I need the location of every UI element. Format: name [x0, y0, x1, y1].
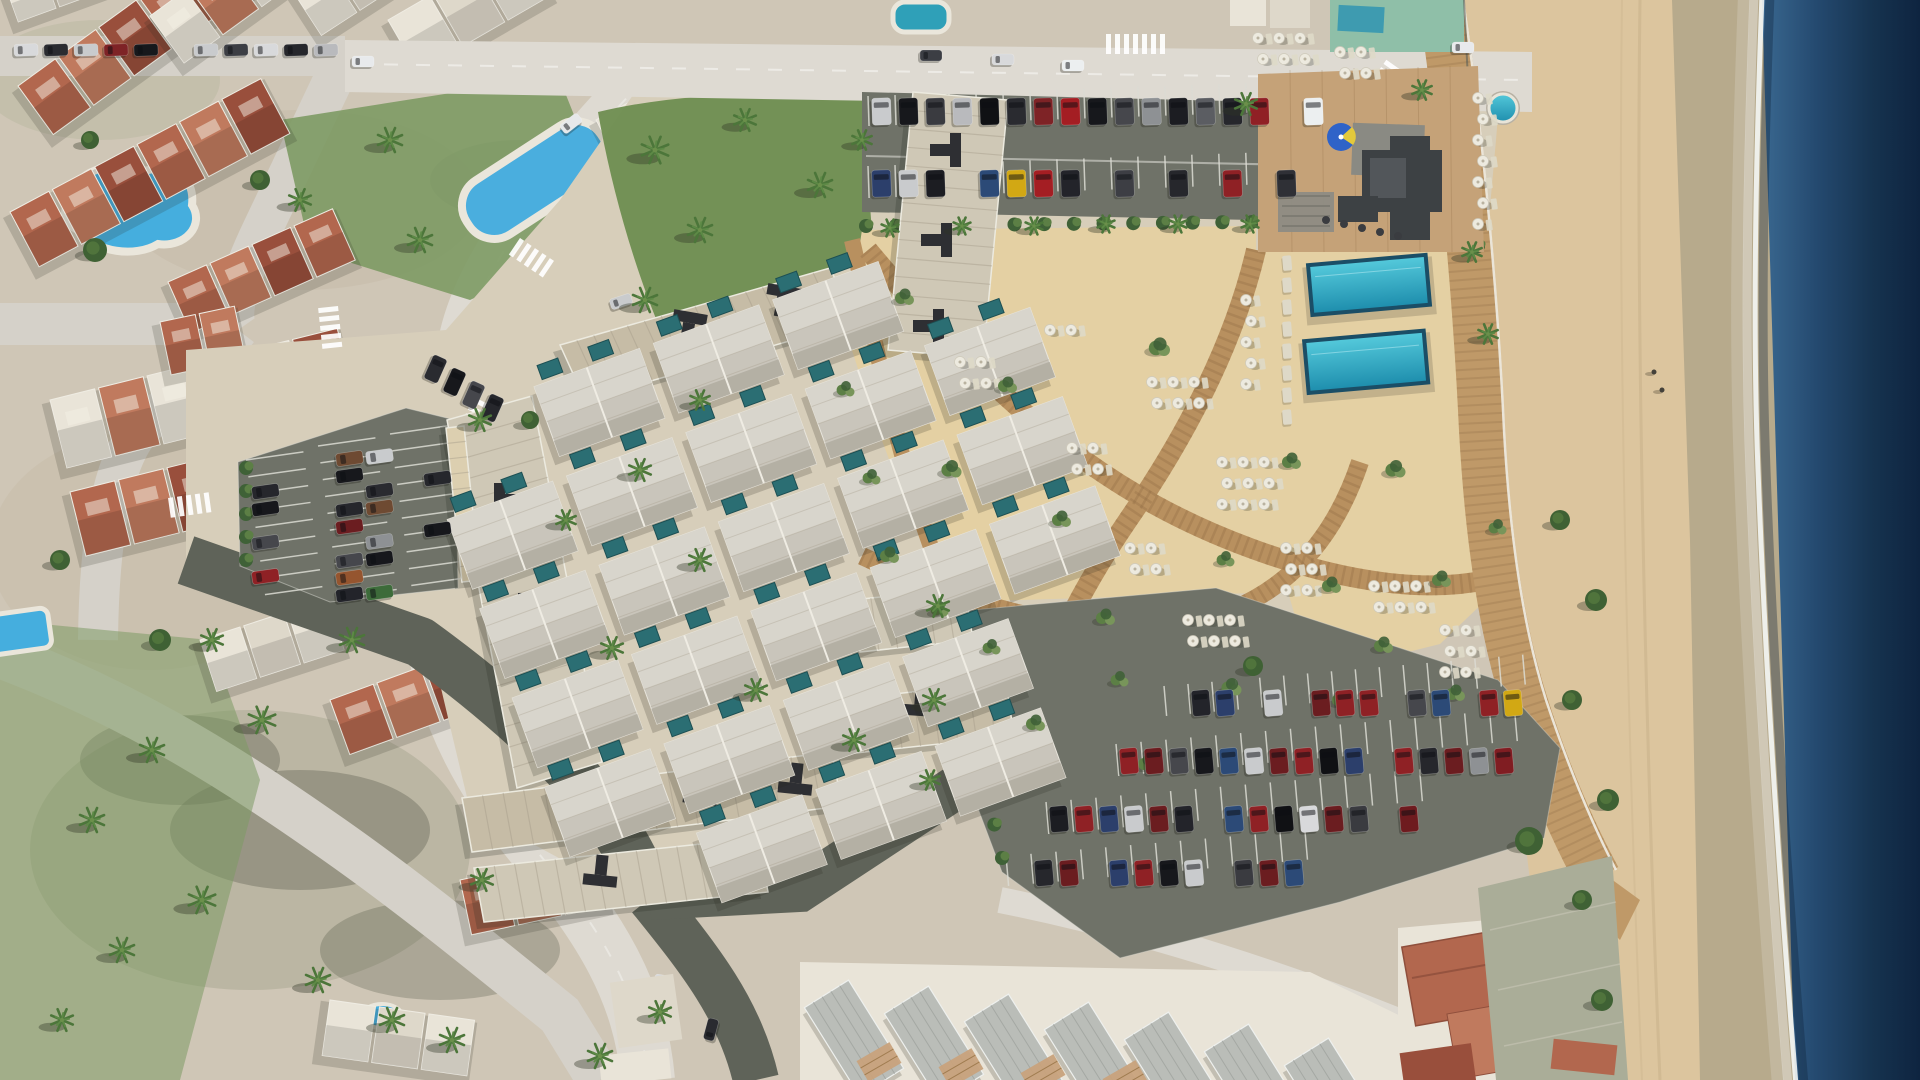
- car: [1477, 689, 1499, 719]
- car: [978, 170, 1000, 200]
- car: [1450, 42, 1474, 55]
- car: [192, 44, 218, 59]
- car: [1357, 689, 1379, 719]
- pool: [1337, 5, 1384, 33]
- car: [1097, 805, 1119, 835]
- car: [1192, 747, 1214, 777]
- sun-lounger: [1282, 365, 1292, 381]
- car: [312, 44, 338, 59]
- car: [1222, 805, 1244, 835]
- car: [1122, 805, 1144, 835]
- car: [1221, 170, 1243, 200]
- car: [924, 170, 946, 200]
- car: [1072, 805, 1094, 835]
- car: [1405, 689, 1427, 719]
- car: [1194, 98, 1216, 128]
- car: [1167, 747, 1189, 777]
- car: [1429, 689, 1451, 719]
- car: [1267, 747, 1289, 777]
- car: [1292, 747, 1314, 777]
- car: [252, 44, 278, 59]
- swimming-pool: [0, 607, 52, 656]
- car: [870, 98, 892, 128]
- car: [350, 56, 374, 69]
- car: [1317, 747, 1339, 777]
- sun-lounger: [1282, 387, 1292, 403]
- car: [1172, 805, 1194, 835]
- car: [1182, 859, 1204, 889]
- car: [1417, 747, 1439, 777]
- building: [1270, 0, 1310, 28]
- car: [1342, 747, 1364, 777]
- car: [1492, 747, 1514, 777]
- lap-pool: [1306, 333, 1426, 391]
- car: [924, 98, 946, 128]
- car: [1309, 689, 1331, 719]
- car: [1322, 805, 1344, 835]
- car: [1242, 747, 1264, 777]
- car: [990, 54, 1014, 67]
- car: [1005, 98, 1027, 128]
- car: [1392, 747, 1414, 777]
- car: [1032, 859, 1054, 889]
- car: [1213, 689, 1235, 719]
- car: [978, 98, 1000, 128]
- car: [222, 44, 248, 59]
- seafront-courtyard: [1478, 856, 1628, 1080]
- car: [1272, 805, 1294, 835]
- car: [951, 98, 973, 128]
- car: [1257, 859, 1279, 889]
- car: [1501, 689, 1523, 719]
- car: [1047, 805, 1069, 835]
- car: [102, 44, 128, 59]
- car: [1005, 170, 1027, 200]
- car: [1140, 98, 1162, 128]
- club-roof-upper: [1370, 158, 1406, 198]
- car: [1113, 170, 1135, 200]
- car: [1107, 859, 1129, 889]
- car: [282, 44, 308, 59]
- car: [918, 50, 942, 63]
- car: [1275, 170, 1297, 200]
- sun-lounger: [1282, 321, 1292, 337]
- car: [1113, 98, 1135, 128]
- car: [1086, 98, 1108, 128]
- aerial-photo: [0, 0, 1920, 1080]
- car: [1217, 747, 1239, 777]
- car: [72, 44, 98, 59]
- car: [1060, 60, 1084, 73]
- car: [1247, 805, 1269, 835]
- car: [1232, 859, 1254, 889]
- car: [1117, 747, 1139, 777]
- car: [1397, 805, 1419, 835]
- building: [1230, 0, 1266, 26]
- aerial-photo-stage: [0, 0, 1920, 1080]
- car: [1347, 805, 1369, 835]
- car: [132, 44, 158, 59]
- car: [1032, 170, 1054, 200]
- car: [1059, 98, 1081, 128]
- car: [1032, 98, 1054, 128]
- car: [897, 98, 919, 128]
- sun-lounger: [1282, 299, 1292, 315]
- car: [1167, 98, 1189, 128]
- car: [1333, 689, 1355, 719]
- car: [1467, 747, 1489, 777]
- car: [1157, 859, 1179, 889]
- car: [1142, 747, 1164, 777]
- umbrella-cluster: [1440, 625, 1486, 680]
- building: [610, 974, 683, 1048]
- car: [1147, 805, 1169, 835]
- car: [870, 170, 892, 200]
- car: [1302, 98, 1324, 128]
- sun-lounger: [1282, 409, 1292, 425]
- car: [1189, 689, 1211, 719]
- ocean: [1672, 0, 1920, 1080]
- parasol-pole: [1339, 135, 1344, 140]
- car: [1059, 170, 1081, 200]
- car: [1057, 859, 1079, 889]
- sun-lounger: [1282, 255, 1292, 271]
- car: [1132, 859, 1154, 889]
- car: [1297, 805, 1319, 835]
- sun-lounger: [1282, 277, 1292, 293]
- club-roof-annex: [1338, 196, 1378, 222]
- car: [1167, 170, 1189, 200]
- car: [12, 44, 38, 59]
- car: [1442, 747, 1464, 777]
- car: [897, 170, 919, 200]
- swimming-pool: [893, 2, 949, 32]
- car: [42, 44, 68, 59]
- sun-lounger: [1282, 343, 1292, 359]
- car: [1261, 689, 1283, 719]
- car: [1282, 859, 1304, 889]
